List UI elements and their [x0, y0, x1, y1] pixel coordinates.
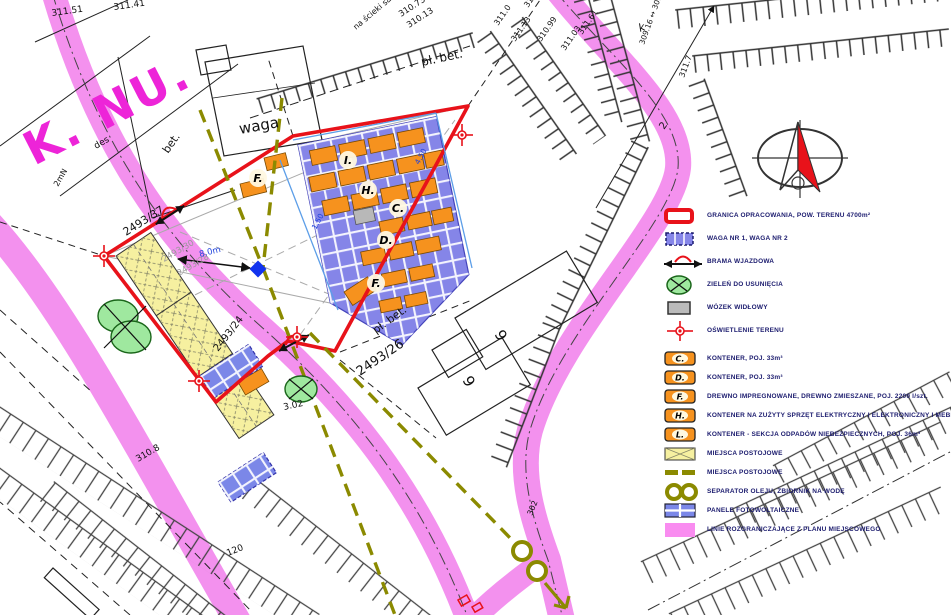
container-label: C.: [392, 202, 404, 215]
legend-row-container-l: L. KONTENER - SEKCJA ODPADÓW NIEBEZPIECZ…: [663, 425, 951, 444]
svg-text:L.: L.: [676, 431, 684, 440]
tree-symbol: [663, 275, 707, 295]
legend-label: KONTENER - SEKCJA ODPADÓW NIEBEZPIECZNYC…: [707, 431, 920, 438]
legend-label: MIEJSCA POSTOJOWE: [707, 469, 783, 476]
legend-row-container-c: C. KONTENER, POJ. 33m³: [663, 349, 951, 368]
legend-label: BRAMA WJAZDOWA: [707, 258, 774, 265]
water-tank: [528, 562, 546, 580]
weighbridge-symbol: [663, 230, 707, 248]
legend-row-parking-dash: MIEJSCA POSTOJOWE: [663, 463, 951, 482]
svg-text:C.: C.: [676, 355, 685, 364]
legend-row-parking-yellow: MIEJSCA POSTOJOWE: [663, 444, 951, 463]
legend-row-light: OŚWIETLENIE TERENU: [663, 319, 951, 342]
pv-symbol: [663, 502, 707, 519]
legend-row-container-f: F. DREWNO IMPREGNOWANE, DREWNO ZMIESZANE…: [663, 387, 951, 406]
tree-symbol: [285, 376, 317, 402]
area-label: K. NU.: [14, 46, 199, 176]
elevation-label: 311.2: [522, 0, 543, 9]
legend-label: KONTENER, POJ. 33m³: [707, 355, 783, 362]
legend-label: PANELE FOTOWOLTAICZNE: [707, 507, 799, 514]
legend-row-separator: SEPARATOR OLEJU, ZBIORNIK NA WODĘ: [663, 482, 951, 501]
parcel-number: 2493/26: [354, 337, 407, 380]
container-label: F.: [371, 277, 380, 290]
parking-dash-symbol: [663, 468, 707, 478]
legend-label: WÓZEK WIDŁOWY: [707, 304, 768, 311]
svg-text:F.: F.: [677, 393, 684, 402]
elevation-label: 120: [225, 543, 245, 559]
legend-row-planning-line: LINIE ROZGRANICZAJĄCE Z PLANU MIEJSCOWEG…: [663, 520, 951, 539]
legend-row-waga: WAGA NR 1, WAGA NR 2: [663, 227, 951, 250]
legend-label: ZIELEŃ DO USUNIĘCIA: [707, 281, 783, 288]
legend-row-forklift: WÓZEK WIDŁOWY: [663, 296, 951, 319]
legend-row-pv: PANELE FOTOWOLTAICZNE: [663, 501, 951, 520]
legend-row-boundary: GRANICA OPRACOWANIA, POW. TERENU 4700m²: [663, 204, 951, 227]
legend: GRANICA OPRACOWANIA, POW. TERENU 4700m² …: [663, 204, 951, 539]
legend-row-gate: BRAMA WJAZDOWA: [663, 250, 951, 273]
legend-row-container-h: H. KONTENER NA ZUŻYTY SPRZĘT ELEKTRYCZNY…: [663, 406, 951, 425]
planning-line-symbol: [663, 521, 707, 539]
note-label: 2mN: [52, 167, 69, 188]
legend-row-container-d: D. KONTENER, POJ. 33m³: [663, 368, 951, 387]
elevation-label: 311.0: [492, 3, 513, 27]
legend-label: MIEJSCA POSTOJOWE: [707, 450, 783, 457]
container-label: H.: [361, 184, 374, 197]
lighting-symbol: [451, 124, 473, 146]
building-number: 9: [459, 373, 479, 391]
building-small: [44, 568, 99, 615]
elevation-label: 311.7: [677, 54, 693, 79]
legend-label: LINIE ROZGRANICZAJĄCE Z PLANU MIEJSCOWEG…: [707, 526, 881, 533]
building-number: 9: [491, 327, 511, 345]
site-plan-map: F. I. H. C. D. F. 311.51 311.41 na ściek…: [0, 0, 951, 615]
legend-label: GRANICA OPRACOWANIA, POW. TERENU 4700m²: [707, 212, 870, 219]
note-label: na ścieki sa.: [351, 0, 395, 32]
legend-label: KONTENER, POJ. 33m³: [707, 374, 783, 381]
container-label: D.: [379, 234, 392, 247]
container-symbol: H.: [663, 407, 707, 424]
weighhouse-label: waga: [238, 113, 281, 138]
elevation-label: 3.02: [283, 399, 305, 413]
lighting-symbol: [663, 320, 707, 342]
legend-label: KONTENER NA ZUŻYTY SPRZĘT ELEKTRYCZNY I …: [707, 412, 951, 419]
compass-rose: [752, 120, 848, 198]
oil-separator: [513, 542, 531, 560]
separator-symbol: [663, 481, 707, 503]
legend-label: SEPARATOR OLEJU, ZBIORNIK NA WODĘ: [707, 488, 845, 495]
legend-label: WAGA NR 1, WAGA NR 2: [707, 235, 788, 242]
elevation-label: 310.99: [535, 15, 558, 43]
surface-label: bet.: [160, 131, 183, 156]
north-arrow: [798, 122, 820, 192]
legend-label: OŚWIETLENIE TERENU: [707, 327, 784, 334]
boundary-symbol: [663, 207, 707, 225]
legend-label: DREWNO IMPREGNOWANE, DREWNO ZMIESZANE, P…: [707, 393, 928, 400]
svg-text:H.: H.: [675, 412, 685, 421]
gate-symbol: [663, 253, 707, 271]
forklift-symbol: [663, 300, 707, 316]
container-symbol: L.: [663, 426, 707, 443]
legend-row-tree: ZIELEŃ DO USUNIĘCIA: [663, 273, 951, 296]
dimension-label: 8.0m: [198, 245, 222, 260]
container-symbol: D.: [663, 369, 707, 386]
container-label: F.: [253, 172, 262, 185]
container-label: I.: [344, 154, 352, 167]
container-symbol: C.: [663, 350, 707, 367]
elevation-label: 311.41: [113, 0, 146, 13]
parking-yellow-symbol: [663, 446, 707, 462]
svg-text:D.: D.: [675, 374, 685, 383]
container-symbol: F.: [663, 388, 707, 405]
